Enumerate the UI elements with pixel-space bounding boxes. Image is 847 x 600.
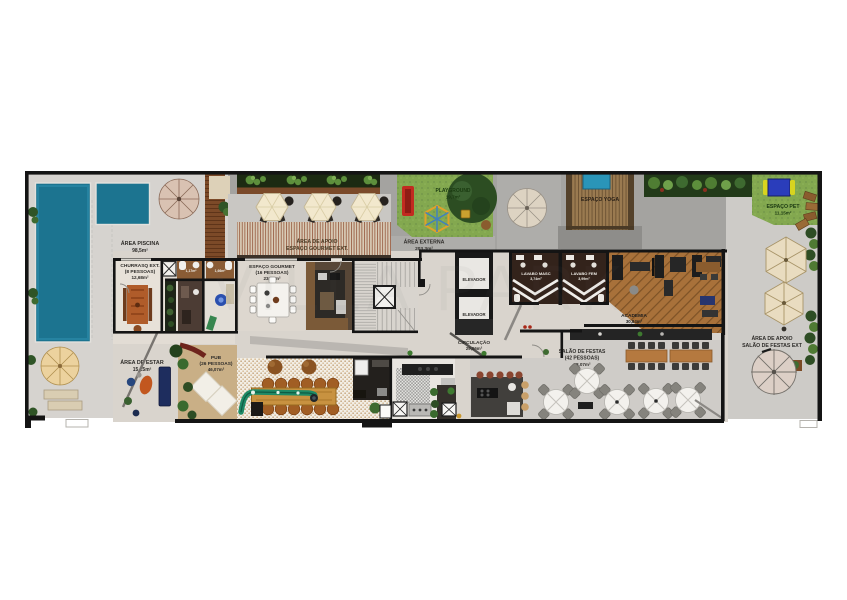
svg-text:SALÃO DE FESTAS EXT: SALÃO DE FESTAS EXT: [742, 342, 803, 349]
svg-text:CIRCULAÇÃO: CIRCULAÇÃO: [458, 339, 491, 346]
svg-text:PUB: PUB: [211, 355, 222, 361]
svg-text:ÁREA EXTERNA: ÁREA EXTERNA: [404, 239, 445, 246]
svg-text:1,17m²: 1,17m²: [186, 269, 198, 273]
svg-text:98,5m²: 98,5m²: [132, 248, 148, 254]
svg-text:ESPAÇO YOGA: ESPAÇO YOGA: [581, 197, 619, 203]
svg-text:ESPAÇO PET: ESPAÇO PET: [766, 204, 800, 210]
svg-text:(42 PESSOAS): (42 PESSOAS): [565, 356, 600, 362]
svg-text:11,15m²: 11,15m²: [775, 211, 792, 216]
svg-text:ÁREA DE APOIO: ÁREA DE APOIO: [296, 238, 337, 245]
svg-text:ÁREA PISCINA: ÁREA PISCINA: [121, 240, 160, 247]
svg-text:CHURRASQ EXT.: CHURRASQ EXT.: [120, 263, 159, 269]
svg-text:12,68m²: 12,68m²: [131, 275, 149, 280]
svg-text:29,06m²: 29,06m²: [466, 346, 483, 351]
svg-text:19,7m²: 19,7m²: [446, 195, 461, 200]
svg-text:SALÃO DE FESTAS: SALÃO DE FESTAS: [559, 348, 606, 355]
svg-text:VILLA PARK: VILLA PARK: [211, 252, 629, 324]
svg-text:46,07m²: 46,07m²: [208, 367, 225, 372]
svg-text:ÁREA DE APOIO: ÁREA DE APOIO: [751, 335, 792, 342]
svg-text:PLAYGROUND: PLAYGROUND: [435, 188, 470, 194]
